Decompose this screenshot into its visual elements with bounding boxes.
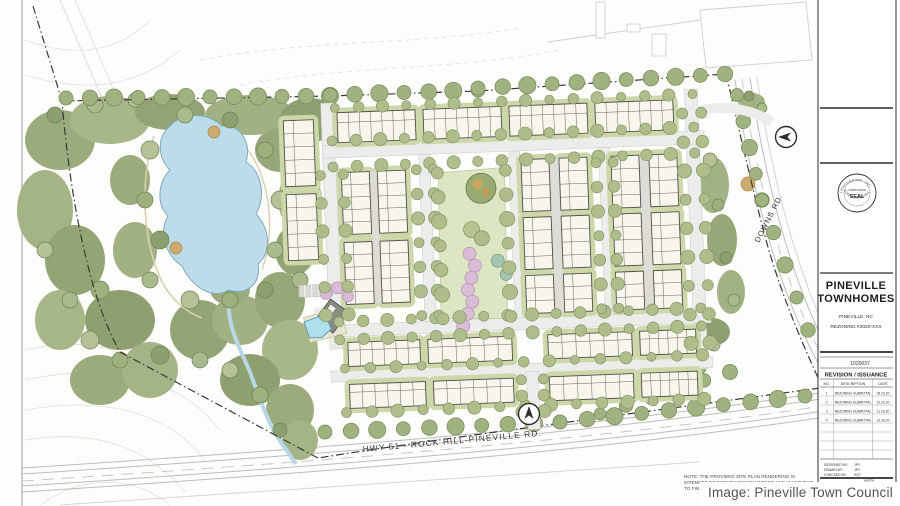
col-description: DESCRIPTION — [841, 382, 866, 386]
tree — [151, 346, 169, 364]
tree — [142, 272, 158, 288]
street-tree — [568, 93, 579, 104]
street-tree — [448, 97, 461, 110]
street-tree — [518, 356, 529, 367]
street-tree — [594, 231, 604, 241]
street-tree — [473, 156, 483, 166]
street-tree — [453, 328, 467, 342]
street-tree — [319, 281, 331, 293]
street-tree — [466, 357, 479, 370]
svg-text:3: 3 — [826, 410, 828, 414]
street-tree — [545, 95, 554, 104]
fall-accent-tree — [208, 126, 220, 138]
tree — [91, 281, 109, 299]
street-tree — [717, 66, 733, 82]
street-tree — [475, 418, 489, 432]
street-tree — [330, 103, 339, 112]
street-tree — [203, 90, 217, 104]
street-tree — [639, 90, 650, 101]
street-tree — [670, 302, 684, 316]
street-tree — [351, 160, 363, 172]
svg-text:09.23.20: 09.23.20 — [877, 392, 890, 396]
townhome-building — [283, 120, 316, 187]
street-tree — [473, 98, 482, 107]
street-tree — [551, 308, 561, 318]
street-tree — [479, 311, 489, 321]
tree — [62, 292, 78, 308]
street-tree — [519, 153, 533, 167]
street-tree — [624, 323, 634, 333]
street-tree — [595, 353, 606, 364]
street-tree — [421, 84, 437, 100]
street-tree — [373, 132, 387, 146]
street-tree — [417, 361, 426, 370]
street-tree — [621, 395, 635, 409]
townhome-building — [563, 273, 592, 312]
townhome-building — [286, 194, 319, 261]
street-tree — [526, 326, 540, 340]
street-tree — [662, 89, 675, 102]
street-tree — [446, 129, 460, 143]
street-tree — [594, 408, 606, 420]
street-tree — [688, 89, 697, 98]
street-tree — [502, 260, 516, 274]
townhome-building — [380, 240, 410, 303]
street-tree — [648, 396, 658, 406]
street-tree — [611, 253, 623, 265]
street-tree — [643, 70, 659, 86]
svg-text:10.20.20: 10.20.20 — [877, 401, 890, 405]
street-tree — [553, 415, 567, 429]
street-tree — [664, 147, 678, 161]
street-tree — [493, 358, 502, 367]
checked-by-value: KGT — [854, 473, 861, 477]
svg-text:REZONING SUBMITTAL: REZONING SUBMITTAL — [835, 392, 872, 396]
entrance-arrow-marker-south — [519, 404, 540, 425]
street-tree — [422, 420, 438, 436]
tree — [47, 107, 63, 123]
street-tree — [571, 399, 581, 409]
street-tree — [402, 100, 411, 109]
street-tree — [499, 188, 513, 202]
tree — [222, 112, 238, 128]
fall-accent-tree — [170, 242, 182, 254]
street-tree — [579, 411, 595, 427]
street-tree — [495, 128, 507, 140]
tree — [744, 91, 754, 101]
street-tree — [335, 335, 345, 345]
street-tree — [801, 323, 816, 338]
svg-text:12.18.20: 12.18.20 — [877, 419, 890, 423]
tree — [252, 387, 268, 403]
street-tree — [414, 261, 426, 273]
street-tree — [226, 89, 242, 105]
note-line-1: NOTE: THE PROVIDED SITE PLAN RENDERING I… — [684, 474, 795, 479]
designed-by-label: DESIGNED BY: — [824, 463, 848, 467]
street-tree — [663, 121, 677, 135]
street-tree — [499, 164, 511, 176]
street-tree — [568, 152, 580, 164]
svg-text:4: 4 — [826, 419, 828, 423]
townhome-building — [525, 275, 554, 314]
street-tree — [407, 332, 417, 342]
flowering-tree — [466, 295, 479, 308]
street-tree — [680, 250, 695, 265]
street-tree — [677, 164, 692, 179]
tree — [181, 291, 199, 309]
street-tree — [683, 308, 696, 321]
street-tree — [696, 349, 709, 362]
street-tree — [671, 320, 685, 334]
street-tree — [790, 291, 803, 304]
street-tree — [343, 423, 359, 439]
street-tree — [502, 284, 518, 300]
street-tree — [591, 158, 601, 168]
street-tree — [431, 214, 447, 230]
street-tree — [318, 425, 332, 439]
street-tree — [437, 313, 449, 325]
rezoning-reference: REZONING #2020-XXX — [830, 324, 882, 330]
street-tree — [399, 133, 409, 143]
street-tree — [318, 254, 328, 264]
street-tree — [593, 72, 610, 89]
park-tree — [474, 230, 490, 246]
street-tree — [338, 197, 350, 209]
svg-text:1: 1 — [826, 392, 828, 396]
street-tree — [358, 333, 370, 345]
street-tree — [434, 240, 446, 252]
street-tree — [635, 406, 649, 420]
street-tree — [545, 153, 555, 163]
project-title-line2: TOWNHOMES — [817, 293, 894, 305]
street-tree — [472, 130, 482, 140]
street-tree — [598, 323, 612, 337]
street-tree — [154, 90, 170, 106]
entrance-arrow-marker-east — [776, 127, 797, 148]
title-block: LANDDESIGN, INC. NORTH CAROLINA CORPORAT… — [817, 0, 900, 506]
street-tree — [619, 73, 633, 87]
credits-block: DESIGNED BY: JPY DRAWN BY: JPY CHECKED B… — [824, 463, 861, 477]
pond — [160, 116, 268, 294]
street-tree — [411, 212, 425, 226]
street-tree — [690, 148, 700, 158]
street-tree — [596, 397, 608, 409]
project-number: 1020037 — [850, 361, 870, 367]
street-tree — [374, 158, 388, 172]
street-tree — [425, 99, 436, 110]
street-tree — [177, 89, 194, 106]
street-tree — [743, 394, 759, 410]
street-tree — [400, 159, 410, 169]
street-tree — [591, 124, 605, 138]
street-tree — [567, 126, 579, 138]
street-tree — [341, 407, 351, 417]
street-tree — [445, 82, 462, 99]
tree — [267, 242, 283, 258]
street-tree — [569, 75, 585, 91]
street-tree — [647, 352, 656, 361]
street-tree — [617, 151, 627, 161]
designed-by-value: JPY — [854, 463, 861, 467]
street-tree — [350, 134, 362, 146]
street-tree — [616, 125, 626, 135]
street-tree — [499, 211, 515, 227]
street-tree — [538, 374, 548, 384]
street-tree — [249, 88, 266, 105]
street-tree — [611, 277, 625, 291]
street-tree — [703, 335, 718, 350]
svg-text:REZONING SUBMITTAL: REZONING SUBMITTAL — [835, 401, 872, 405]
street-tree — [702, 279, 713, 290]
street-tree — [471, 81, 485, 95]
flowering-tree — [468, 259, 481, 272]
street-tree — [680, 194, 691, 205]
street-tree — [640, 123, 652, 135]
street-tree — [696, 107, 707, 118]
tree — [222, 292, 238, 308]
tree — [257, 282, 273, 298]
street-tree — [516, 390, 528, 402]
street-tree — [591, 91, 604, 104]
street-tree — [467, 401, 481, 415]
street-tree — [334, 317, 344, 327]
street-tree — [591, 181, 603, 193]
street-tree — [741, 139, 757, 155]
street-tree — [677, 108, 688, 119]
townhome-building — [377, 170, 407, 233]
tree — [37, 242, 53, 258]
street-tree — [380, 313, 394, 327]
street-tree — [716, 398, 730, 412]
svg-text:11.18.20: 11.18.20 — [877, 410, 890, 414]
street-tree — [447, 155, 461, 169]
street-tree — [661, 403, 677, 419]
street-tree — [543, 354, 556, 367]
street-tree — [777, 257, 793, 273]
street-tree — [646, 304, 658, 316]
street-tree — [479, 329, 489, 339]
tree — [81, 331, 99, 349]
street-tree — [671, 350, 682, 361]
street-tree — [347, 86, 363, 102]
street-tree — [608, 157, 618, 167]
street-tree — [696, 135, 709, 148]
tree — [728, 294, 740, 306]
street-tree — [357, 315, 369, 327]
adjacent-parcel-lines — [548, 2, 812, 68]
project-title-line1: PINEVILLE — [826, 280, 886, 292]
street-tree — [411, 165, 421, 175]
street-tree — [616, 92, 625, 101]
seal-line1: CORPORATE — [848, 188, 867, 192]
image-credit-caption: Image: Pineville Town Council — [699, 482, 898, 506]
street-tree — [699, 221, 712, 234]
tree — [712, 199, 724, 211]
street-tree — [340, 364, 349, 373]
street-tree — [390, 360, 403, 373]
street-tree — [594, 278, 608, 292]
street-tree — [608, 204, 622, 218]
street-tree — [396, 422, 410, 436]
site-plan-drawing: HWY 51 - ROCK HILL-PINEVILLE RD. DOWNS R… — [0, 0, 900, 506]
street-tree — [683, 280, 694, 291]
street-tree — [620, 351, 633, 364]
street-tree — [684, 336, 699, 351]
svg-text:REZONING SUBMITTAL: REZONING SUBMITTAL — [835, 410, 872, 414]
street-tree — [369, 421, 386, 438]
street-tree — [496, 96, 507, 107]
street-tree — [339, 224, 353, 238]
street-tree — [525, 308, 539, 322]
street-tree — [680, 222, 693, 235]
checked-by-label: CHECKED BY: — [824, 473, 847, 477]
street-tree — [365, 362, 376, 373]
street-tree — [696, 163, 711, 178]
street-tree — [342, 280, 354, 292]
street-tree — [749, 167, 762, 180]
street-tree — [756, 194, 769, 207]
street-tree — [544, 127, 554, 137]
street-tree — [434, 287, 450, 303]
street-tree — [411, 188, 423, 200]
street-tree — [418, 404, 428, 414]
tree — [192, 352, 208, 368]
street-tree — [453, 310, 467, 324]
street-tree — [495, 79, 511, 95]
street-tree — [315, 170, 325, 180]
street-tree — [597, 304, 607, 314]
street-tree — [699, 193, 710, 204]
col-no: NO. — [824, 382, 830, 386]
street-tree — [397, 86, 411, 100]
street-tree — [327, 136, 337, 146]
street-tree — [606, 408, 623, 425]
street-tree — [447, 418, 464, 435]
project-location: PINEVILLE, NC — [839, 314, 873, 320]
svg-text:2: 2 — [826, 401, 828, 405]
tree — [151, 231, 169, 249]
street-tree — [673, 394, 685, 406]
canopy-blob — [122, 342, 178, 398]
street-tree — [614, 303, 624, 313]
drawn-by-value: JPY — [854, 468, 861, 472]
street-tree — [431, 190, 445, 204]
street-tree — [516, 375, 526, 385]
revision-table-header: REVISION / ISSUANCE — [825, 373, 888, 379]
street-tree — [275, 89, 289, 103]
street-tree — [798, 389, 812, 403]
street-tree — [414, 237, 424, 247]
street-tree — [315, 197, 327, 209]
street-tree — [105, 89, 122, 106]
col-date: DATE — [878, 382, 888, 386]
street-tree — [552, 326, 562, 336]
street-tree — [342, 308, 356, 322]
street-tree — [82, 90, 98, 106]
street-tree — [417, 310, 427, 320]
street-tree — [376, 100, 389, 113]
canopy-blob — [717, 270, 745, 314]
street-tree — [442, 359, 453, 370]
street-tree — [574, 307, 586, 319]
street-tree — [431, 167, 443, 179]
street-tree — [502, 237, 514, 249]
street-tree — [647, 322, 659, 334]
street-tree — [611, 230, 621, 240]
street-tree — [697, 392, 711, 406]
street-tree — [667, 68, 684, 85]
street-tree — [545, 77, 559, 91]
street-tree — [59, 91, 73, 105]
street-tree — [538, 389, 550, 401]
street-tree — [519, 94, 532, 107]
street-tree — [689, 122, 699, 132]
street-tree — [608, 180, 620, 192]
street-tree — [505, 310, 517, 322]
street-tree — [328, 162, 338, 172]
street-tree — [518, 127, 532, 141]
seal-line2: SEAL — [850, 194, 866, 200]
street-tree — [699, 249, 714, 264]
tree — [257, 142, 273, 158]
street-tree — [298, 88, 314, 104]
street-tree — [591, 205, 605, 219]
street-tree — [693, 68, 707, 82]
street-tree — [677, 136, 690, 149]
flowering-tree — [461, 283, 474, 296]
tree — [141, 141, 159, 159]
street-tree — [731, 89, 744, 102]
flowering-tree — [465, 271, 478, 284]
street-tree — [414, 285, 428, 299]
street-tree — [443, 403, 455, 415]
svg-text:REZONING SUBMITTAL: REZONING SUBMITTAL — [835, 419, 872, 423]
street-tree — [422, 131, 434, 143]
street-tree — [341, 253, 351, 263]
street-tree — [769, 390, 786, 407]
street-tree — [371, 85, 388, 102]
street-tree — [570, 355, 579, 364]
street-tree — [575, 325, 587, 337]
site-plan-screenshot: HWY 51 - ROCK HILL-PINEVILLE RD. DOWNS R… — [0, 0, 900, 506]
street-tree — [323, 88, 337, 102]
street-tree — [696, 321, 706, 331]
street-tree — [131, 91, 145, 105]
street-tree — [641, 149, 653, 161]
street-tree — [391, 404, 405, 418]
flowering-tree — [463, 247, 476, 260]
street-tree — [502, 327, 514, 339]
title-block-background — [818, 0, 900, 506]
street-tree — [722, 364, 737, 379]
street-tree — [366, 406, 378, 418]
street-tree — [594, 254, 606, 266]
tree — [720, 252, 732, 264]
street-tree — [430, 330, 442, 342]
street-tree — [319, 308, 333, 322]
drawn-by-label: DRAWN BY: — [824, 468, 843, 472]
street-tree — [519, 77, 536, 94]
street-tree — [495, 402, 505, 412]
tree — [177, 107, 193, 123]
street-tree — [353, 101, 364, 112]
street-tree — [702, 307, 715, 320]
street-tree — [434, 263, 448, 277]
street-tree — [381, 331, 395, 345]
street-tree — [623, 306, 633, 316]
tree — [137, 192, 153, 208]
tree — [222, 362, 238, 378]
